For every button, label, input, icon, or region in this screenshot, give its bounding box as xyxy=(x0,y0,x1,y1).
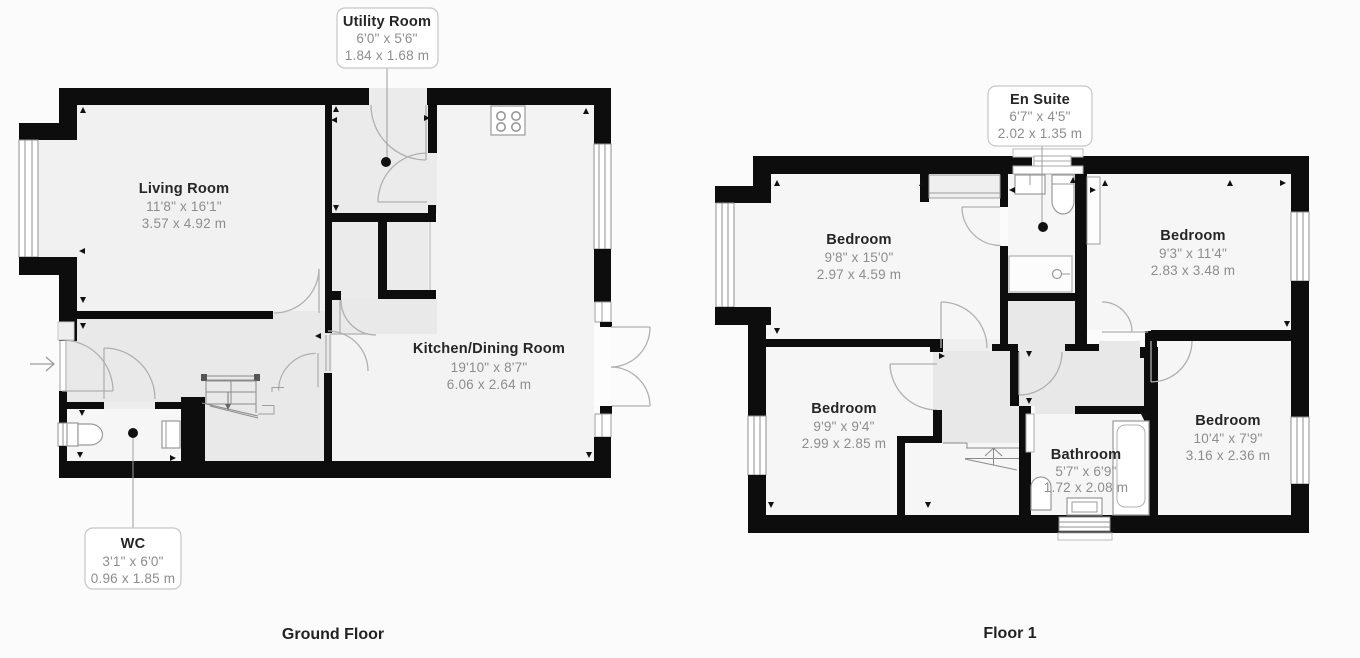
svg-text:Floor 1: Floor 1 xyxy=(983,625,1036,642)
svg-text:10'4" x 7'9": 10'4" x 7'9" xyxy=(1194,431,1263,446)
svg-text:3.16 x 2.36 m: 3.16 x 2.36 m xyxy=(1186,448,1270,463)
svg-text:2.83 x 3.48 m: 2.83 x 3.48 m xyxy=(1151,263,1235,278)
svg-text:2.99 x 2.85 m: 2.99 x 2.85 m xyxy=(802,436,886,451)
svg-text:Living Room: Living Room xyxy=(139,181,230,197)
svg-text:3.57 x 4.92 m: 3.57 x 4.92 m xyxy=(142,216,226,231)
svg-text:Bathroom: Bathroom xyxy=(1051,447,1122,463)
svg-text:3'1" x 6'0": 3'1" x 6'0" xyxy=(102,554,163,569)
svg-text:6'0" x 5'6": 6'0" x 5'6" xyxy=(356,31,417,46)
svg-text:19'10" x 8'7": 19'10" x 8'7" xyxy=(451,360,528,375)
svg-text:Ground Floor: Ground Floor xyxy=(282,626,384,643)
svg-text:WC: WC xyxy=(121,536,146,552)
svg-text:2.97 x 4.59 m: 2.97 x 4.59 m xyxy=(817,267,901,282)
svg-text:Bedroom: Bedroom xyxy=(1160,228,1225,244)
svg-text:Utility Room: Utility Room xyxy=(343,14,431,30)
svg-text:Bedroom: Bedroom xyxy=(811,401,876,417)
svg-text:1.72 x 2.08 m: 1.72 x 2.08 m xyxy=(1044,480,1128,495)
svg-text:En Suite: En Suite xyxy=(1010,92,1070,108)
svg-text:2.02 x 1.35 m: 2.02 x 1.35 m xyxy=(998,126,1082,141)
svg-text:9'9" x 9'4": 9'9" x 9'4" xyxy=(813,419,874,434)
svg-text:9'3" x 11'4": 9'3" x 11'4" xyxy=(1159,246,1227,261)
svg-text:6'7" x 4'5": 6'7" x 4'5" xyxy=(1009,109,1070,124)
svg-text:1.84 x 1.68 m: 1.84 x 1.68 m xyxy=(345,48,429,63)
svg-text:Bedroom: Bedroom xyxy=(1195,413,1260,429)
svg-text:Bedroom: Bedroom xyxy=(826,232,891,248)
svg-text:Kitchen/Dining Room: Kitchen/Dining Room xyxy=(413,341,565,357)
svg-text:9'8" x 15'0": 9'8" x 15'0" xyxy=(825,250,894,265)
svg-text:0.96 x 1.85 m: 0.96 x 1.85 m xyxy=(91,571,175,586)
svg-text:11'8" x 16'1": 11'8" x 16'1" xyxy=(146,199,222,214)
svg-text:5'7" x 6'9": 5'7" x 6'9" xyxy=(1055,464,1116,479)
svg-text:6.06 x 2.64 m: 6.06 x 2.64 m xyxy=(447,377,531,392)
